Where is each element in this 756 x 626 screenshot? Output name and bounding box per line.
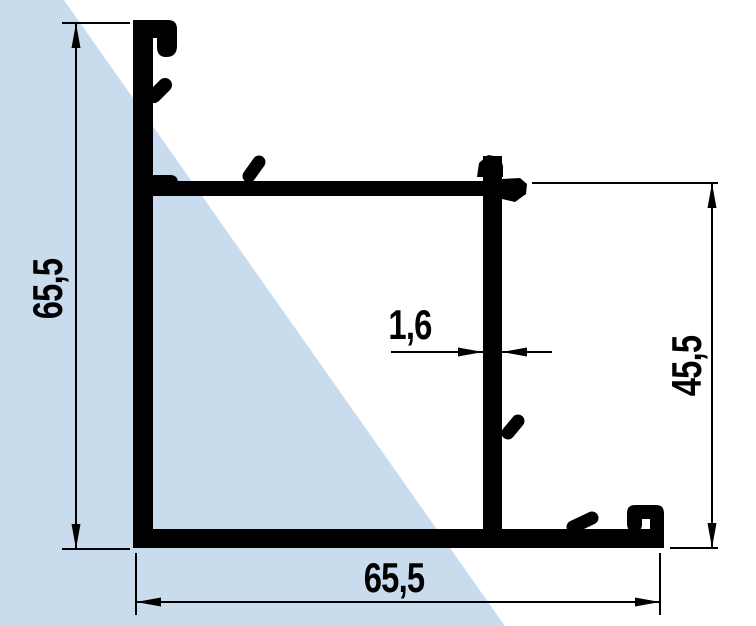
right-wall-side-stub [502, 178, 527, 202]
arrow-right-icon [458, 348, 483, 357]
dim-label-height-left: 65,5 [24, 259, 71, 320]
dim-wall-thickness: 1,6 [388, 301, 552, 356]
dim-label-height-right: 45,5 [663, 336, 710, 397]
arrow-left-icon [502, 348, 527, 357]
right-wall-top-stub [477, 155, 503, 177]
technical-drawing-canvas: 65,5 65,5 45,5 1,6 [0, 0, 756, 626]
dim-height-right: 45,5 [532, 183, 718, 548]
top-left-fin [154, 85, 165, 96]
arrow-up-icon [708, 183, 717, 208]
middle-web-fin [249, 162, 259, 176]
arrow-down-icon [708, 523, 717, 548]
arrow-right-icon [635, 598, 660, 607]
middle-web [153, 181, 483, 196]
bottom-web [133, 529, 664, 548]
dim-label-width-bottom: 65,5 [364, 554, 425, 601]
right-wall-fin [508, 421, 518, 433]
dim-label-wall-thickness: 1,6 [388, 301, 431, 348]
right-wall [483, 156, 502, 548]
profile-drawing: 65,5 65,5 45,5 1,6 [0, 0, 756, 626]
bottom-web-fin [573, 518, 592, 527]
